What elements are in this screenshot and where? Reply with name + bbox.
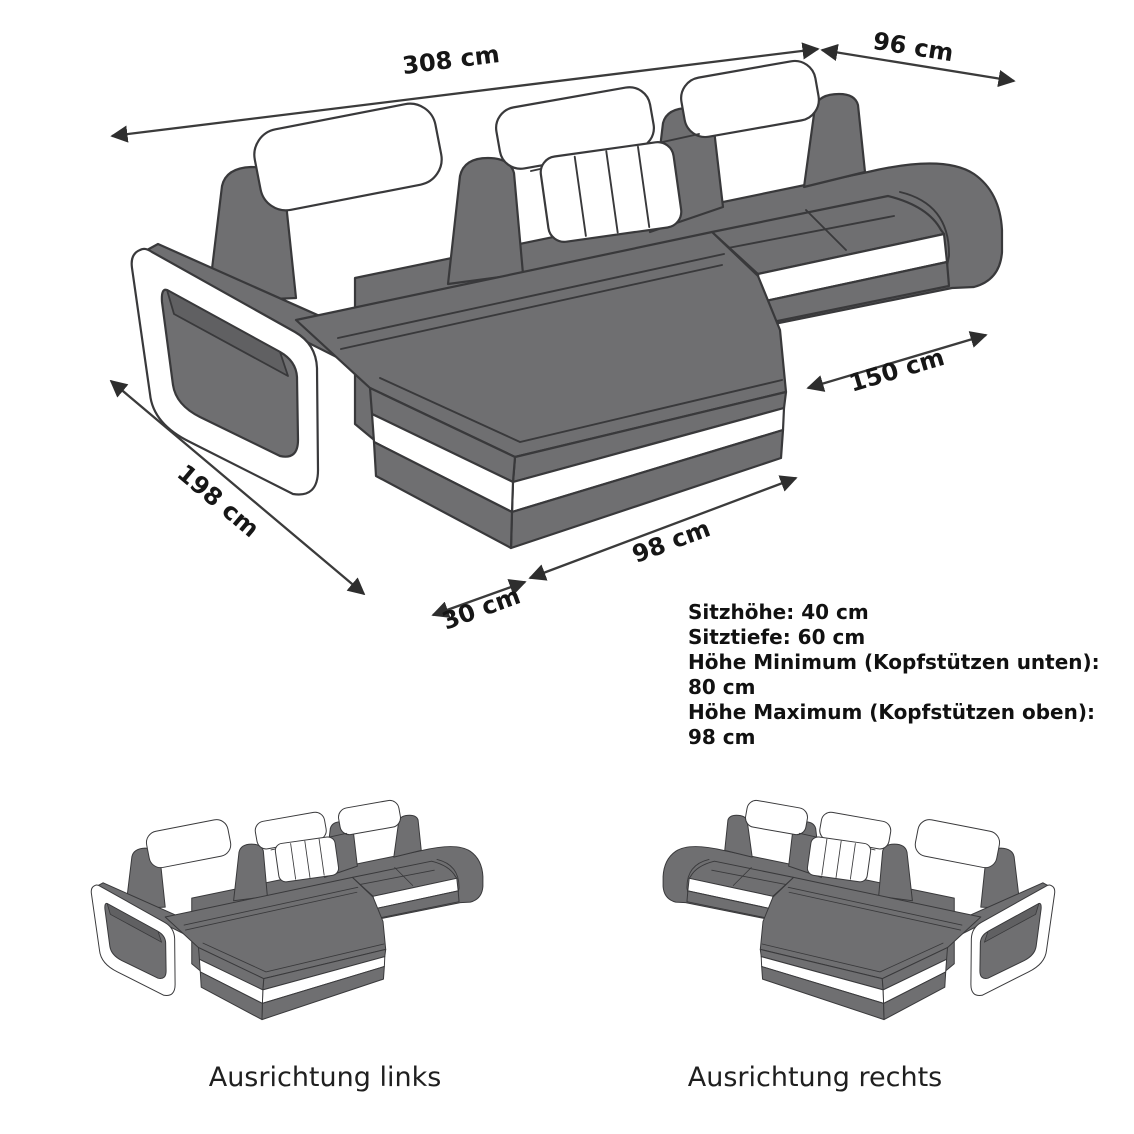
spec-line-height-max: Höhe Maximum (Kopfstützen oben): 98 cm — [688, 700, 1128, 750]
dimension-total-depth: 96 cm — [822, 27, 1014, 81]
dimension-label-chaise-front: 98 cm — [628, 514, 714, 569]
product-dimension-page: 308 cm 96 cm 150 cm 198 cm 98 cm 30 cm S… — [0, 0, 1134, 1134]
caption-orientation-right: Ausrichtung rechts — [620, 1062, 1010, 1093]
spec-line-height-min: Höhe Minimum (Kopfstützen unten): 80 cm — [688, 650, 1128, 700]
sofa-dimension-diagram: 308 cm 96 cm 150 cm 198 cm 98 cm 30 cm — [0, 0, 1134, 1134]
dimension-label-total-depth: 96 cm — [871, 27, 955, 67]
dimension-label-total-width: 308 cm — [401, 40, 501, 80]
caption-orientation-left: Ausrichtung links — [130, 1062, 520, 1093]
sofa-illustration-main — [132, 58, 1002, 548]
spec-text-block: Sitzhöhe: 40 cm Sitztiefe: 60 cm Höhe Mi… — [688, 600, 1128, 750]
dimension-label-seat-front-right: 150 cm — [846, 343, 948, 398]
dimension-arm-front: 30 cm — [433, 581, 525, 635]
sofa-thumbnail-orientation-right — [663, 799, 1055, 1020]
sofa-thumbnail-orientation-left — [91, 799, 483, 1020]
dimension-seat-front-right: 150 cm — [808, 335, 986, 398]
dimension-label-arm-front: 30 cm — [438, 581, 524, 635]
spec-line-seat-height: Sitzhöhe: 40 cm — [688, 600, 1128, 625]
spec-line-seat-depth: Sitztiefe: 60 cm — [688, 625, 1128, 650]
